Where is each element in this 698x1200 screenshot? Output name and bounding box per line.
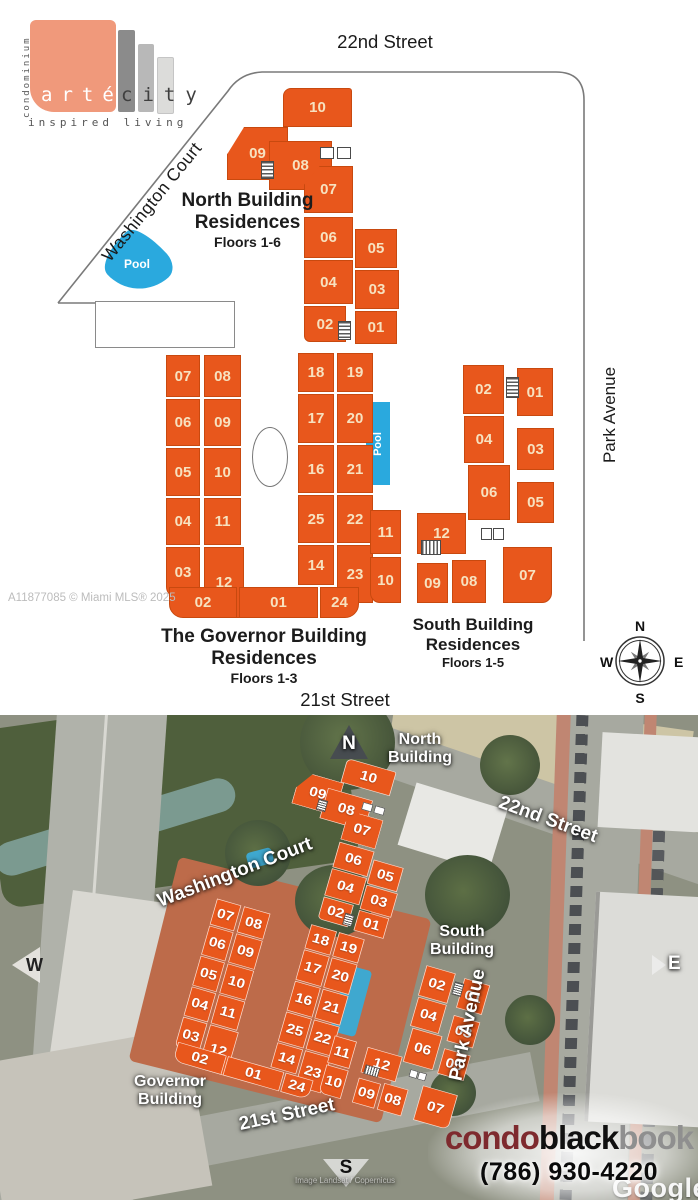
phone-number: (786) 930-4220 [440,1158,698,1187]
south-building-subtitle: Residences [392,635,554,655]
unit-south-11: 11 [370,510,401,554]
unit-south-10: 10 [370,557,401,603]
north-building-title: North Building [155,190,340,212]
aerial-compass-n: N [342,733,356,755]
elevator-icon [361,802,373,812]
aerial-compass-e: E [668,953,681,975]
unit-governor-16: 16 [298,445,334,493]
governor-building-subtitle: Residences [148,648,380,670]
unit-south-03: 03 [517,428,554,470]
compass-e-label: E [674,654,683,670]
elevator-icon [373,805,385,815]
artecity-siteplan-image: condominium arté city inspired living 22… [0,0,698,1200]
governor-building-label: The Governor Building Residences Floors … [148,626,380,686]
stairs-icon [506,377,519,398]
unit-south-04: 04 [410,997,447,1034]
compass-w-label: W [600,654,613,670]
unit-governor-20: 20 [337,394,373,443]
unit-south-06: 06 [403,1028,443,1070]
unit-governor-09: 09 [204,399,241,446]
north-building-subtitle: Residences [155,212,340,234]
unit-governor-14: 14 [298,545,334,585]
unit-governor-25: 25 [298,495,334,543]
unit-north-05: 05 [355,229,397,268]
aerial-north-building-line1: North [388,731,452,749]
aerial-governor-building-line1: Governor [134,1073,206,1091]
aerial-south-building-label: South Building [430,923,494,959]
stairs-icon [338,321,351,340]
unit-governor-08: 08 [204,355,241,397]
unit-south-08: 08 [452,560,486,603]
unit-governor-07: 07 [166,355,200,397]
aerial-satellite-view: 10 09 08 07 06 04 02 05 03 01 07 06 05 0… [0,715,698,1200]
trees-blob [480,735,540,795]
logo-city-text: city [121,84,207,106]
building-roof-patch [598,732,698,833]
south-building-title: South Building [392,615,554,635]
logo-tagline: inspired living [28,116,187,129]
governor-building-title: The Governor Building [148,626,380,648]
unit-governor-19: 19 [337,353,373,392]
governor-building-floors: Floors 1-3 [148,670,380,686]
imagery-attribution: Image Landsat / Copernicus [295,1176,395,1185]
unit-governor-06: 06 [166,399,200,446]
aerial-compass-w: W [26,955,43,976]
unit-governor-01: 01 [239,587,318,618]
logo-part-black: black [539,1119,618,1156]
mls-watermark: A11877085 © Miami MLS® 2025 [8,592,176,604]
pool-governor-label: Pool [372,432,384,456]
compass-n-label: N [635,618,645,634]
street-label-park-avenue: Park Avenue [600,367,620,463]
unit-governor-05: 05 [166,448,200,496]
condoblackbook-logo: condoblackbook [440,1121,698,1154]
stairs-icon [421,540,441,555]
unit-south-01: 01 [517,368,553,416]
aerial-governor-building-label: Governor Building [134,1073,206,1109]
trees-blob [505,995,555,1045]
unit-south-02: 02 [463,365,504,414]
aerial-north-building-label: North Building [388,731,452,767]
unit-governor-10: 10 [204,448,241,496]
unit-governor-11: 11 [204,498,241,545]
unit-south-06: 06 [468,465,510,520]
courtyard-oval [252,427,288,487]
aerial-governor-building-line2: Building [134,1091,206,1109]
unit-governor-24: 24 [320,587,359,618]
unit-south-05: 05 [517,482,554,523]
aerial-south-building-line1: South [430,923,494,941]
aerial-south-building-line2: Building [430,941,494,959]
pool-north-label: Pool [124,257,150,271]
south-building-floors: Floors 1-5 [392,655,554,670]
compass-s-label: S [635,690,644,706]
south-building-label: South Building Residences Floors 1-5 [392,615,554,670]
stairs-icon [261,161,274,179]
unit-governor-17: 17 [298,394,334,443]
elevator-icon [481,528,492,540]
condoblackbook-branding: condoblackbook (786) 930-4220 [440,1121,698,1187]
elevator-icon [337,147,351,159]
unit-north-03: 03 [355,270,399,309]
compass-rose-icon [608,629,672,693]
unit-north-05: 05 [367,860,404,893]
elevator-icon [493,528,504,540]
aerial-north-building-line2: Building [388,749,452,767]
street-label-21st: 21st Street [300,689,389,711]
unit-governor-02: 02 [169,587,237,618]
north-building-label: North Building Residences Floors 1-6 [155,190,340,250]
logo-part-condo: condo [445,1119,539,1156]
unit-governor-18: 18 [298,353,334,392]
unit-south-07: 07 [503,547,552,603]
logo-part-book: book [618,1119,693,1156]
unit-north-01: 01 [355,311,397,344]
unit-north-10: 10 [283,88,352,127]
unit-governor-21: 21 [337,445,373,493]
elevator-icon [320,147,334,159]
unit-governor-22: 22 [337,495,373,543]
street-label-22nd: 22nd Street [337,31,433,53]
outbuilding-outline [95,301,235,348]
unit-north-04: 04 [304,260,353,304]
unit-south-02: 02 [418,965,456,1004]
trees-blob [295,865,373,937]
unit-south-09: 09 [417,563,448,603]
unit-south-04: 04 [464,416,504,463]
north-building-floors: Floors 1-6 [155,234,340,250]
logo-arte-text: arté [41,84,123,106]
site-plan: condominium arté city inspired living 22… [0,0,698,715]
unit-governor-04: 04 [166,498,200,545]
compass-rose: N S W E [600,618,680,704]
